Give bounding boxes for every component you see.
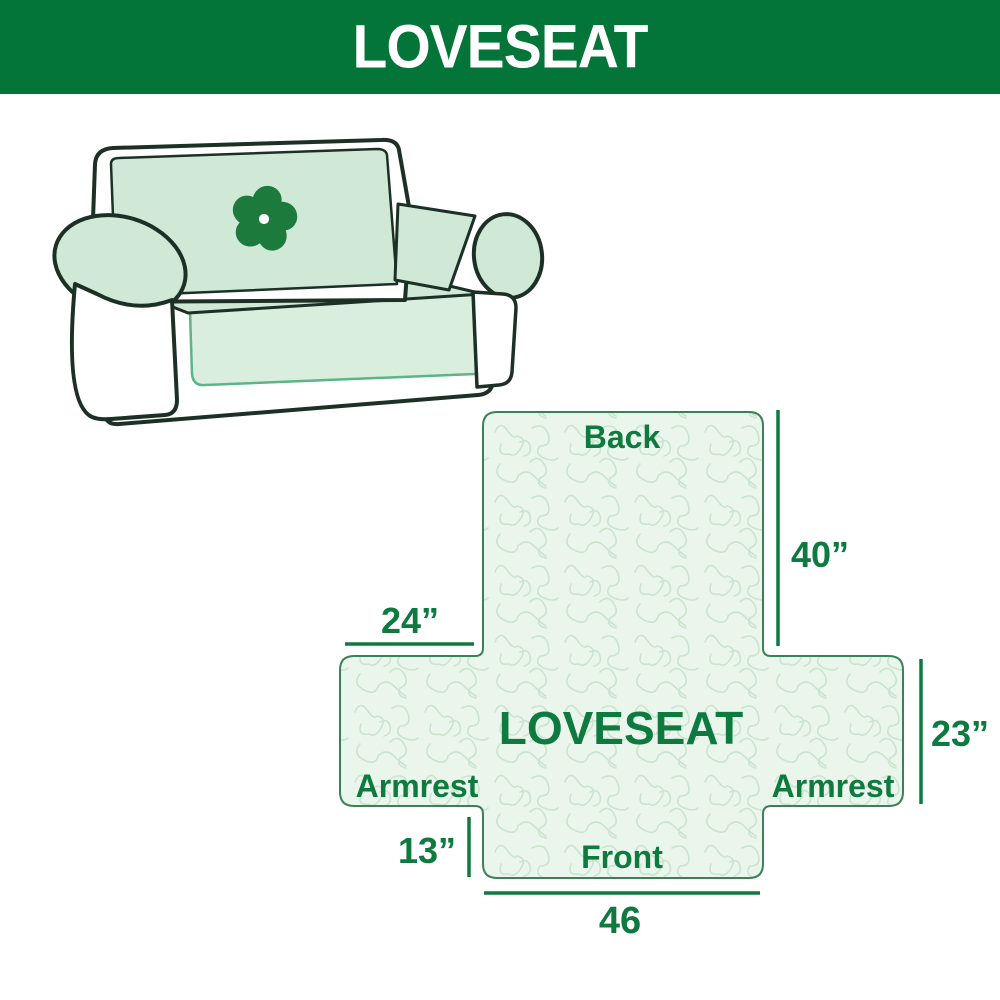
sofa-illustration [35,122,555,442]
dim-back-height: 40” [791,534,849,575]
sofa-right-arm-front [473,292,516,387]
cover-dimensions-diagram: Back LOVESEAT Armrest Armrest Front 40” … [320,398,1000,958]
sofa-right-arm-cover [395,204,475,290]
dim-front-height: 13” [398,830,456,871]
header-banner: LOVESEAT [0,0,1000,94]
page: LOVESEAT [0,0,1000,1000]
dim-armrest-height: 23” [931,713,989,754]
sofa-right-arm-roll [469,210,547,302]
armrest-right-label: Armrest [772,768,895,804]
back-section-label: Back [584,419,661,455]
page-title: LOVESEAT [353,11,648,82]
front-section-label: Front [581,839,663,875]
armrest-left-label: Armrest [356,768,479,804]
dim-armrest-width: 24” [381,600,439,641]
center-label: LOVESEAT [499,702,744,754]
sofa-left-arm-front [72,284,177,419]
dim-front-width: 46 [599,900,641,942]
